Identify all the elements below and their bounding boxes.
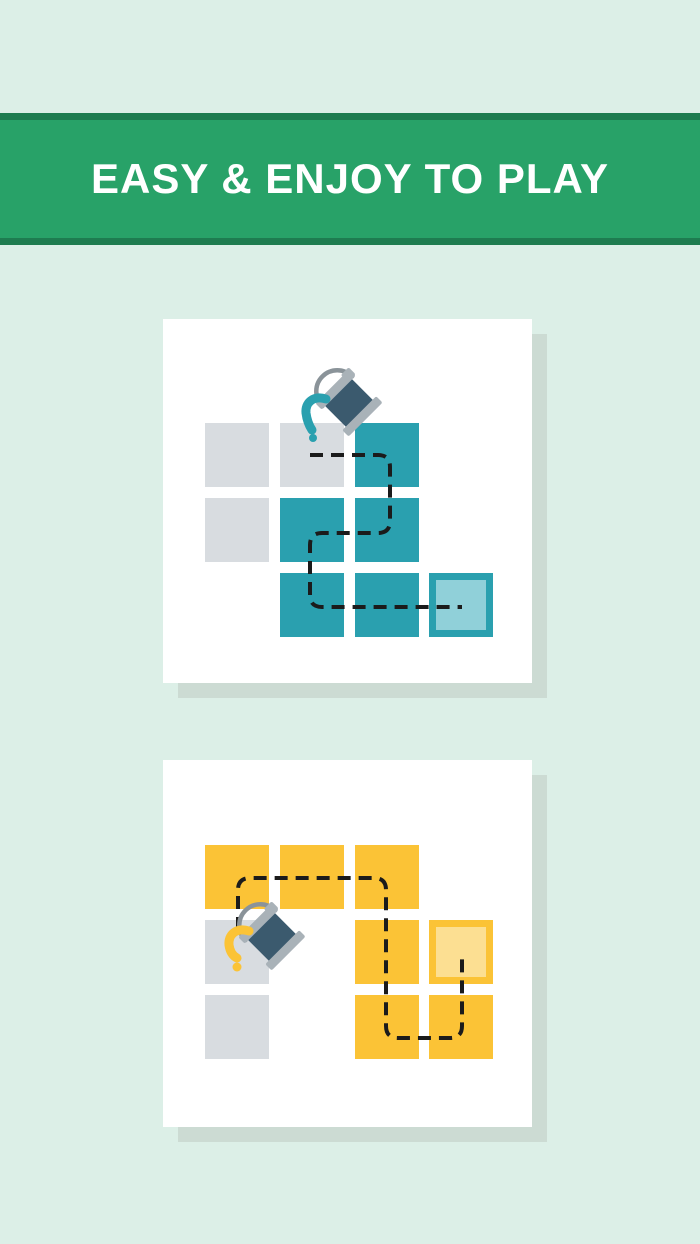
grid-cell-yellow	[280, 845, 344, 909]
yellow-puzzle-board	[163, 760, 532, 1127]
puzzle-card-yellow	[163, 760, 532, 1127]
puzzle-card-teal	[163, 319, 532, 683]
grid-layer	[205, 423, 493, 637]
banner-bottom-edge	[0, 238, 700, 245]
banner-title: EASY & ENJOY TO PLAY	[91, 155, 609, 203]
banner: EASY & ENJOY TO PLAY	[0, 113, 700, 245]
promo-screen: EASY & ENJOY TO PLAY	[0, 0, 700, 1244]
grid-cell-gray	[205, 498, 269, 562]
paint-drip	[309, 434, 317, 442]
teal-puzzle-board	[163, 319, 532, 683]
paint-drip	[233, 963, 242, 972]
banner-top-edge	[0, 113, 700, 120]
grid-cell-gray	[205, 995, 269, 1059]
grid-cell-gray	[205, 423, 269, 487]
screenshot-root: { "banner": { "title": "EASY & ENJOY TO …	[0, 0, 700, 1244]
banner-band: EASY & ENJOY TO PLAY	[0, 120, 700, 238]
